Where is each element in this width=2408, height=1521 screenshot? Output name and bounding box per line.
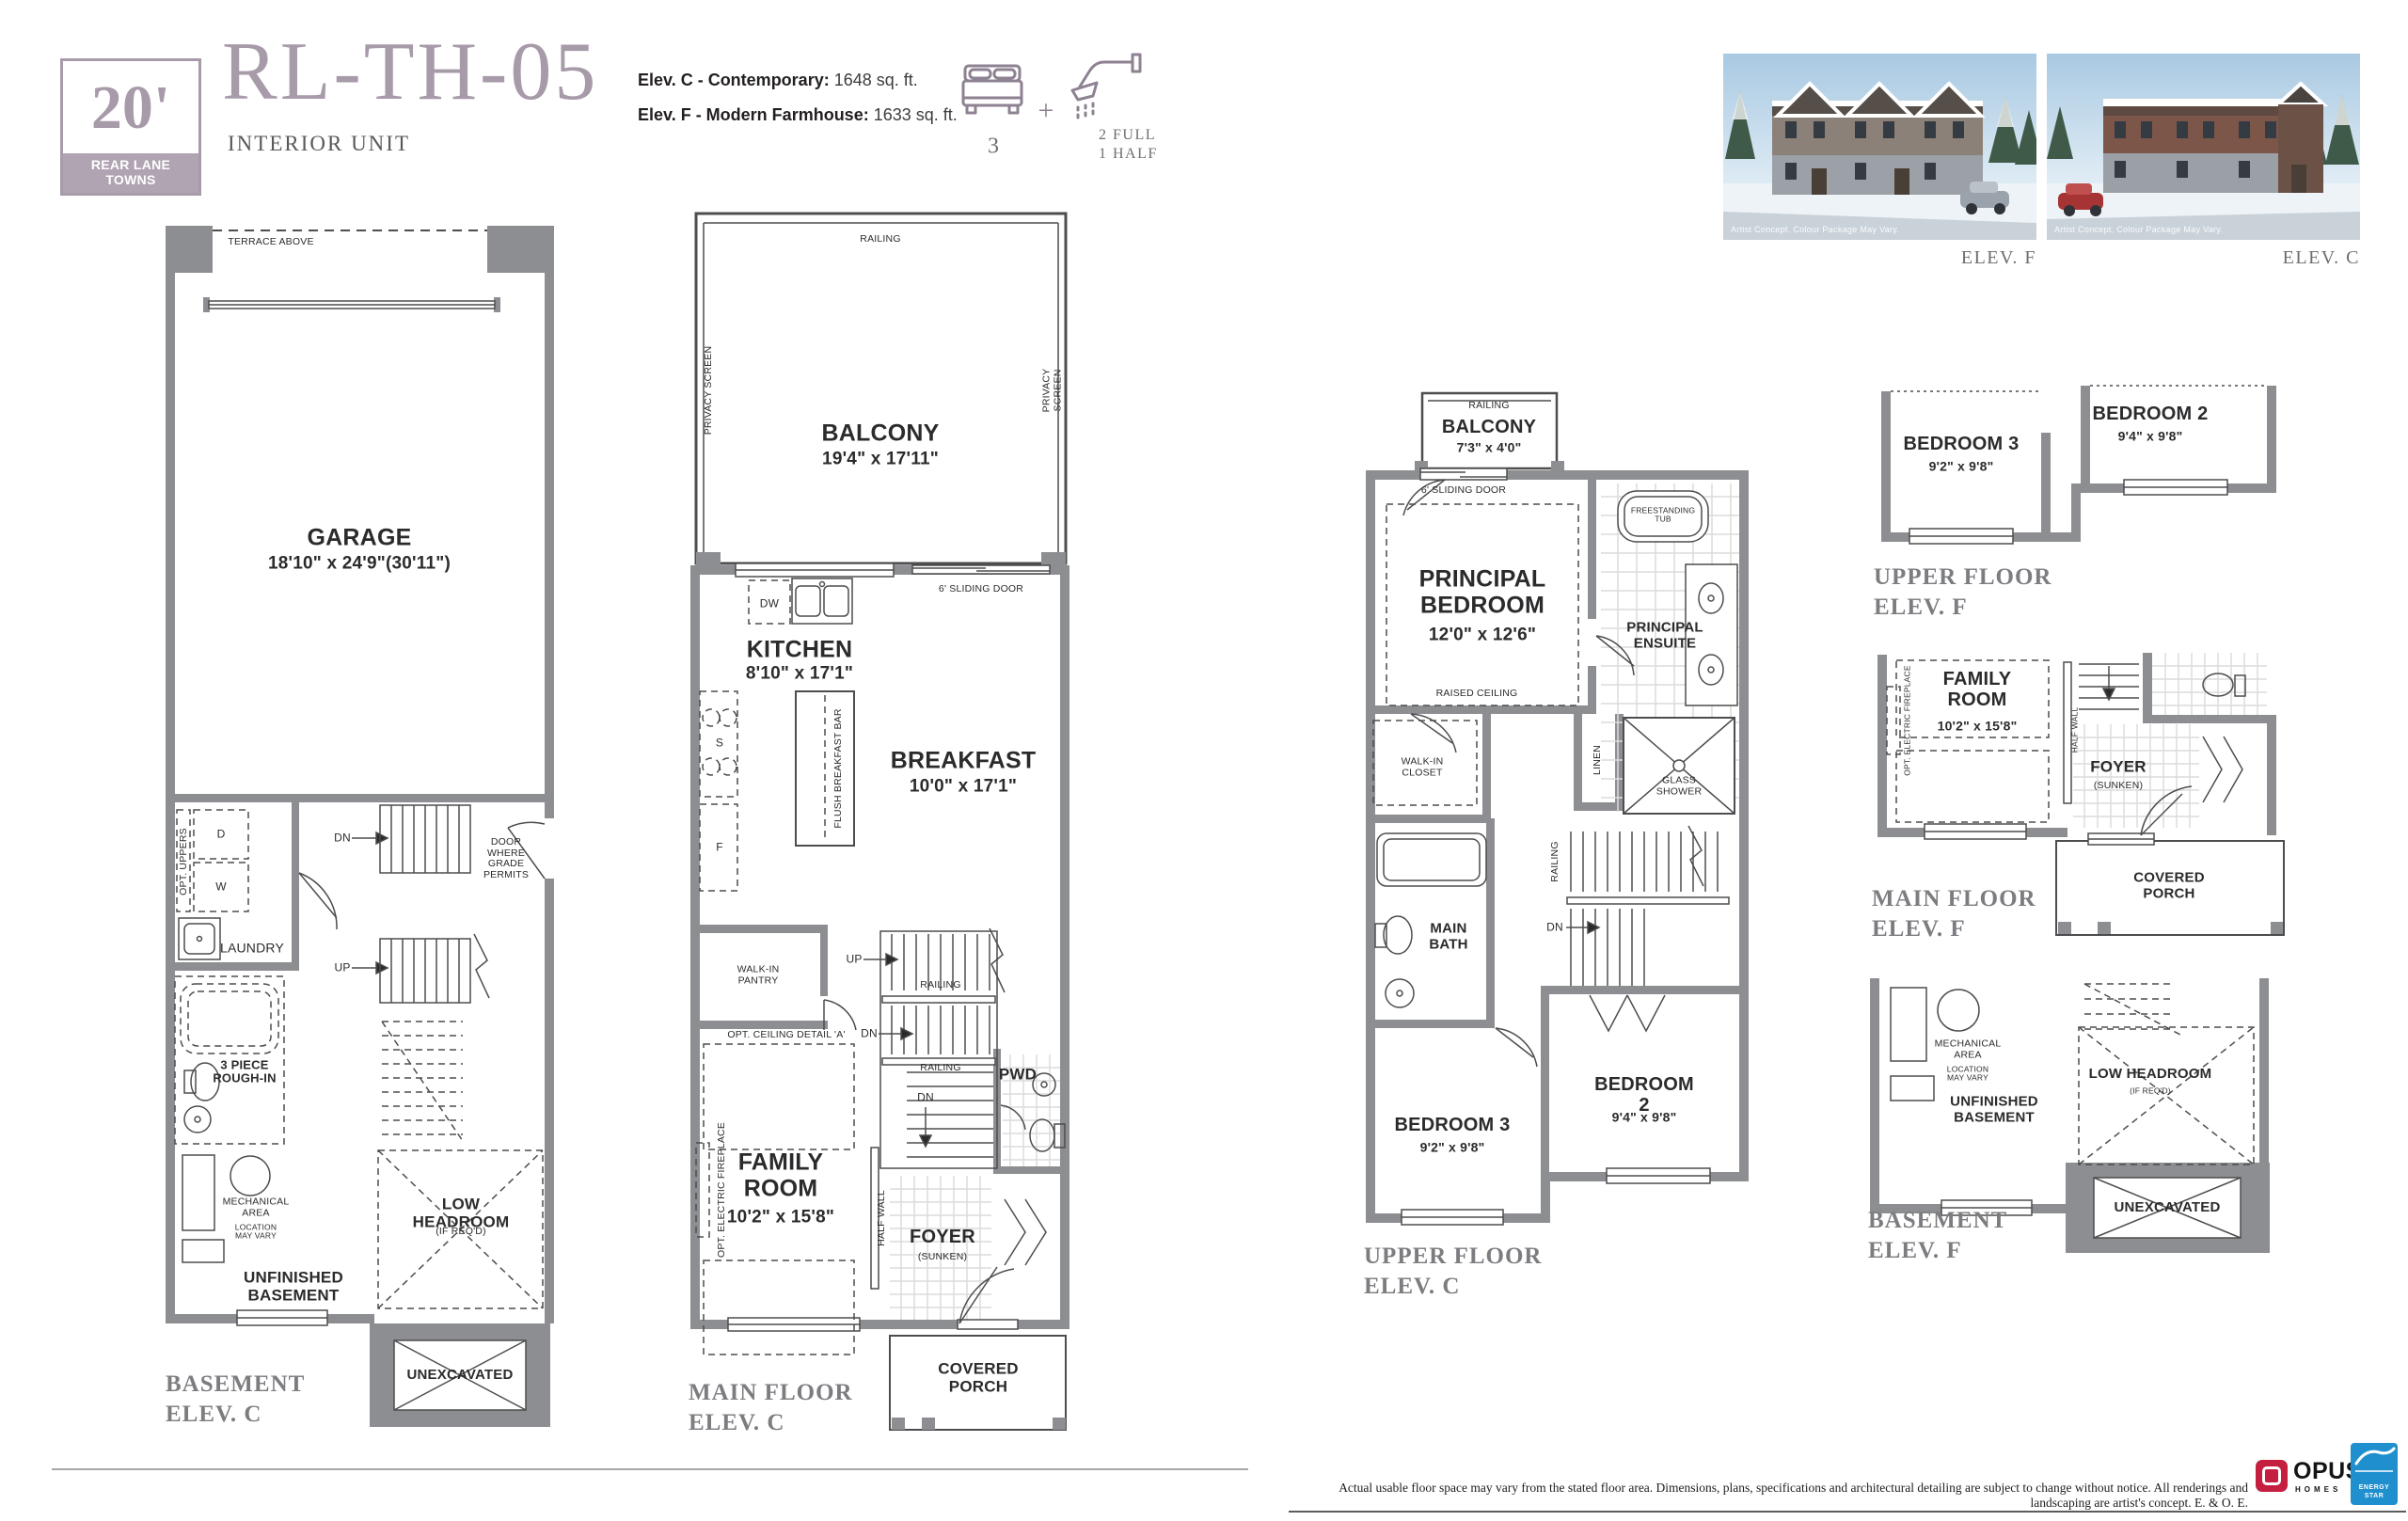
label-principal-bedroom-dim: 12'0" x 12'6": [1429, 626, 1536, 646]
label-freestanding-tub: FREESTANDING TUB: [1631, 507, 1695, 525]
caption-basement-elev-f: BASEMENT ELEV. F: [1868, 1206, 2007, 1266]
plus-sign: +: [1038, 95, 1054, 127]
label-garage: GARAGE: [308, 525, 412, 551]
label-low-headroom-sub: (IF REQ'D): [2130, 1086, 2171, 1095]
label-breakfast: BREAKFAST: [891, 748, 1037, 774]
label-walkin-pantry: WALK-IN PANTRY: [737, 964, 780, 986]
render-watermark: Artist Concept. Colour Package May Vary.: [2054, 225, 2223, 234]
label-mechanical: MECHANICAL AREA: [1935, 1038, 2002, 1060]
label-up: UP: [334, 961, 350, 974]
label-family-room: FAMILY ROOM: [1943, 669, 2012, 710]
label-mechanical-sub: LOCATION MAY VARY: [235, 1224, 277, 1242]
label-foyer: FOYER: [2090, 759, 2147, 777]
label-electric-fireplace: OPT. ELECTRIC FIREPLACE: [1903, 665, 1911, 776]
label-dn: DN: [334, 832, 351, 844]
unit-type: INTERIOR UNIT: [228, 132, 410, 156]
label-raised-ceiling: RAISED CEILING: [1436, 689, 1518, 700]
render-watermark: Artist Concept. Colour Package May Vary.: [1731, 225, 1899, 234]
label-railing-mid-1: RAILING: [920, 980, 960, 991]
label-garage-dim: 18'10" x 24'9"(30'11"): [268, 555, 451, 575]
label-bedroom-3: BEDROOM 3: [1395, 1115, 1511, 1135]
label-privacy-screen-left: PRIVACY SCREEN: [704, 346, 715, 436]
label-railing-stairs: RAILING: [1550, 841, 1561, 881]
label-laundry: LAUNDRY: [220, 941, 284, 955]
main-c-drawing: [675, 202, 1099, 1453]
label-bedroom-2: BEDROOM 2: [2093, 404, 2209, 424]
label-dryer: D: [217, 828, 226, 840]
label-railing-mid-2: RAILING: [920, 1063, 960, 1074]
label-bedroom-2-dim: 9'4" x 9'8": [1612, 1110, 1677, 1124]
label-dn: DN: [861, 1027, 878, 1039]
energy-star-text: ENERGY STAR: [2351, 1483, 2398, 1500]
label-door-where-grade: DOOR WHERE GRADE PERMITS: [483, 837, 529, 880]
footer-rule-left: [52, 1468, 1248, 1470]
label-unexcavated: UNEXCAVATED: [406, 1368, 513, 1384]
label-mechanical: MECHANICAL AREA: [223, 1196, 290, 1218]
label-railing: RAILING: [860, 234, 900, 246]
plan-main-floor-elev-c: RAILING BALCONY 19'4" x 17'11" PRIVACY S…: [675, 202, 1099, 1453]
label-family-room: FAMILY ROOM: [738, 1150, 824, 1202]
render-photo-elev-c: Artist Concept. Colour Package May Vary.: [2047, 54, 2360, 240]
label-covered-porch: COVERED PORCH: [2133, 871, 2205, 902]
label-low-headroom: LOW HEADROOM: [2089, 1067, 2212, 1083]
elev-f-area: 1633 sq. ft.: [874, 105, 958, 124]
label-breakfast-dim: 10'0" x 17'1": [910, 778, 1017, 798]
label-bedroom-3: BEDROOM 3: [1904, 434, 2020, 454]
label-bedroom-2-dim: 9'4" x 9'8": [2118, 429, 2183, 443]
bed-icon: [958, 62, 1027, 122]
label-breakfast-bar: FLUSH BREAKFAST BAR: [833, 708, 845, 828]
label-foyer-sub: (SUNKEN): [918, 1252, 967, 1263]
label-low-headroom-sub: (IF REQ'D): [436, 1227, 486, 1238]
label-ceiling-detail: OPT. CEILING DETAIL 'A': [727, 1030, 845, 1041]
render-caption-elev-c: ELEV. C: [2047, 247, 2360, 269]
render-caption-elev-f: ELEV. F: [1723, 247, 2036, 269]
badge-label: REAR LANE TOWNS: [63, 153, 198, 193]
label-privacy-screen-right: PRIVACY SCREEN: [1041, 368, 1063, 414]
caption-main-floor-elev-c: MAIN FLOOR ELEV. C: [689, 1378, 853, 1438]
opus-logo-sub: HOMES: [2295, 1485, 2341, 1494]
caption-main-floor-elev-f: MAIN FLOOR ELEV. F: [1872, 884, 2036, 944]
label-dishwasher: DW: [760, 597, 779, 610]
opus-homes-logo: OPUS HOMES: [2256, 1454, 2344, 1503]
label-unexcavated: UNEXCAVATED: [2114, 1200, 2220, 1216]
plan-upper-floor-elev-c: RAILING BALCONY 7'3" x 4'0" 6' SLIDING D…: [1354, 384, 1759, 1306]
label-bedroom-3-dim: 9'2" x 9'8": [1420, 1140, 1485, 1154]
elev-c-area: 1648 sq. ft.: [834, 71, 918, 89]
label-family-room-dim: 10'2" x 15'8": [727, 1209, 834, 1228]
footer-rule-right: [1289, 1511, 2406, 1513]
render-art-elev-f: [1723, 54, 2036, 240]
bed-count: 3: [988, 135, 999, 160]
label-dn-2: DN: [917, 1091, 934, 1103]
label-foyer-sub: (SUNKEN): [2094, 781, 2143, 792]
plan-basement-elev-c: TERRACE ABOVE GARAGE 18'10" x 24'9"(30'1…: [150, 214, 569, 1437]
elev-f-label: Elev. F - Modern Farmhouse:: [638, 105, 869, 124]
label-walkin-closet: WALK-IN CLOSET: [1402, 756, 1444, 778]
label-covered-porch: COVERED PORCH: [938, 1360, 1018, 1395]
footer-disclaimer: Actual usable floor space may vary from …: [1317, 1481, 2248, 1511]
caption-basement-elev-c: BASEMENT ELEV. C: [166, 1370, 305, 1430]
opus-logo-icon: [2256, 1460, 2288, 1492]
label-linen: LINEN: [1592, 745, 1604, 775]
shower-icon: [1070, 53, 1146, 126]
label-fridge: F: [716, 841, 723, 853]
frontage-badge: 20' REAR LANE TOWNS: [60, 58, 201, 196]
frontage-size: 20': [63, 63, 198, 153]
label-main-bath: MAIN BATH: [1429, 922, 1467, 953]
label-half-wall: HALF WALL: [2070, 707, 2079, 753]
plan-basement-elev-f: MECHANICAL AREA LOCATION MAY VARY UNFINI…: [1861, 978, 2289, 1275]
label-washer: W: [215, 880, 227, 893]
label-pwd: PWD: [999, 1067, 1037, 1085]
label-sliding-door: 6' SLIDING DOOR: [1421, 485, 1506, 497]
label-opt-uppers: OPT. UPPERS: [179, 828, 190, 895]
label-stove: S: [716, 737, 723, 749]
bath-count: 2 FULL 1 HALF: [1099, 126, 1158, 164]
caption-upper-floor-elev-f: UPPER FLOOR ELEV. F: [1874, 562, 2052, 623]
render-art-elev-c: [2047, 54, 2360, 240]
label-kitchen-dim: 8'10" x 17'1": [746, 665, 853, 685]
label-terrace-above: TERRACE ABOVE: [228, 237, 313, 248]
label-rough-in: 3 PIECE ROUGH-IN: [213, 1059, 276, 1086]
label-railing: RAILING: [1468, 401, 1509, 412]
page-title: RL-TH-05: [222, 24, 598, 119]
elev-c-label: Elev. C - Contemporary:: [638, 71, 830, 89]
label-half-wall: HALF WALL: [877, 1190, 888, 1246]
label-glass-shower: GLASS SHOWER: [1656, 775, 1702, 797]
render-photo-elev-f: Artist Concept. Colour Package May Vary.: [1723, 54, 2036, 240]
label-balcony: BALCONY: [1442, 417, 1536, 437]
basement-c-drawing: [150, 214, 569, 1437]
label-mechanical-sub: LOCATION MAY VARY: [1947, 1066, 1988, 1084]
label-up: UP: [846, 953, 862, 965]
energy-star-icon: [2351, 1443, 2398, 1477]
label-bedroom-3-dim: 9'2" x 9'8": [1929, 459, 1994, 473]
label-unfinished-basement: UNFINISHED BASEMENT: [1950, 1095, 2038, 1126]
label-principal-bedroom: PRINCIPAL BEDROOM: [1419, 567, 1546, 619]
label-balcony-dim: 19'4" x 17'11": [822, 451, 939, 470]
label-family-room-dim: 10'2" x 15'8": [1938, 719, 2018, 733]
label-balcony: BALCONY: [821, 420, 939, 447]
plan-main-floor-elev-f: FAMILY ROOM 10'2" x 15'8" OPT. ELECTRIC …: [1872, 647, 2290, 948]
label-electric-fireplace: OPT. ELECTRIC FIREPLACE: [717, 1122, 728, 1258]
label-dn: DN: [1546, 921, 1563, 933]
label-kitchen: KITCHEN: [747, 637, 853, 663]
energy-star-badge: ENERGY STAR: [2351, 1443, 2398, 1505]
label-unfinished-basement: UNFINISHED BASEMENT: [244, 1269, 343, 1304]
plan-upper-floor-elev-f: BEDROOM 3 9'2" x 9'8" BEDROOM 2 9'4" x 9…: [1872, 378, 2286, 632]
label-balcony-dim: 7'3" x 4'0": [1457, 440, 1522, 454]
elevation-specs: Elev. C - Contemporary: 1648 sq. ft. Ele…: [638, 71, 958, 141]
label-principal-ensuite: PRINCIPAL ENSUITE: [1626, 621, 1703, 652]
label-sliding-door: 6' SLIDING DOOR: [939, 584, 1023, 595]
label-foyer: FOYER: [910, 1227, 975, 1247]
caption-upper-floor-elev-c: UPPER FLOOR ELEV. C: [1364, 1242, 1542, 1302]
